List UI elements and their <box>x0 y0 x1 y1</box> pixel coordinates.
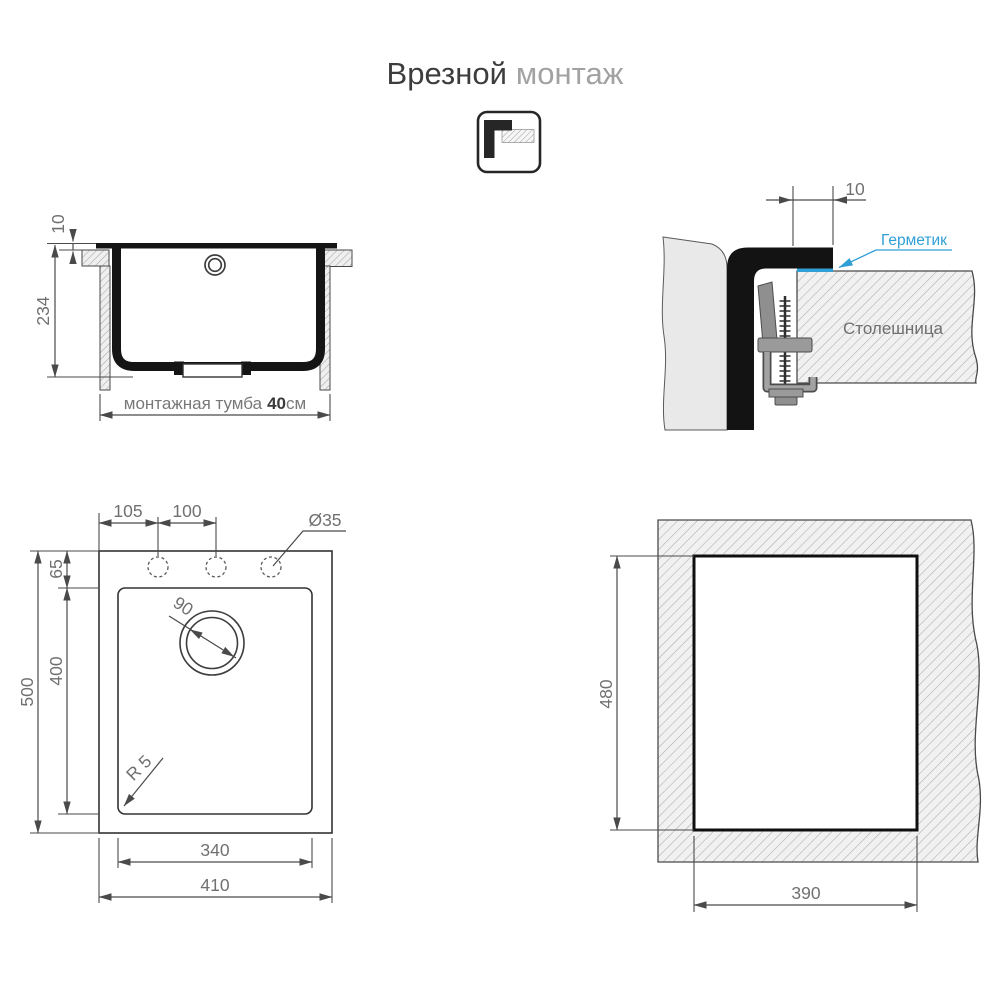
dim-bowl-length-label: 400 <box>46 656 66 685</box>
dim-depth-label: 234 <box>33 296 53 325</box>
cabinet-size-value: 40 <box>267 394 286 413</box>
dim-hole-spacing-label: 100 <box>172 501 201 521</box>
countertop-label: Столешница <box>843 319 944 338</box>
cabinet-label-text: монтажная тумба <box>124 394 263 413</box>
dim-total-length-label: 500 <box>17 677 37 706</box>
cutout-rect <box>694 556 917 830</box>
dim-cutout-width-label: 390 <box>791 883 820 903</box>
inset-mount-icon <box>478 112 540 172</box>
cross-section-view: 10 234 монтажная тумба40см <box>33 214 352 421</box>
bowl-outline-plan <box>118 588 312 814</box>
bottom-dims: 340 410 <box>99 838 332 903</box>
dim-total-width-label: 410 <box>200 875 229 895</box>
page-title-secondary: монтаж <box>516 56 624 91</box>
countertop-right-section <box>321 250 352 267</box>
dim-hole-offset-label: 105 <box>113 501 142 521</box>
installation-drawing: Врезноймонтаж <box>0 0 1000 1000</box>
clamp-plate <box>758 282 777 344</box>
cabinet-size-label: монтажная тумба40см <box>124 394 306 413</box>
clamp-bracket <box>758 338 812 352</box>
dim-overlap-label: 10 <box>845 179 865 199</box>
dim-bowl-width-label: 340 <box>200 840 229 860</box>
sink-rim-section <box>96 243 337 249</box>
sealant-label: Герметик <box>881 232 947 249</box>
icon-countertop-hatch <box>502 130 534 143</box>
cutout-view: 480 390 <box>596 520 980 912</box>
countertop-left-section <box>82 250 109 266</box>
page-title: Врезноймонтаж <box>387 56 624 91</box>
mount-detail-view: 10 Герметик Столешница <box>662 179 977 430</box>
top-dims: 105 100 <box>99 501 216 556</box>
sink-body-surface <box>662 237 727 430</box>
clamp-bolt-head <box>775 397 797 405</box>
dim-rim-above-label: 10 <box>48 214 68 234</box>
dim-cutout-height-label: 480 <box>596 679 616 708</box>
cabinet-unit-text: см <box>286 394 306 413</box>
cabinet-side-left <box>100 266 110 390</box>
left-dims: 65 400 500 <box>17 551 99 833</box>
icon-sink-rim <box>484 120 512 131</box>
sealant-callout: Герметик <box>839 232 952 268</box>
dim-edge-to-bowl-label: 65 <box>46 559 66 578</box>
clamp-washer <box>769 389 803 397</box>
installation-drawing-page: Врезноймонтаж <box>0 0 1000 1000</box>
page-title-primary: Врезной <box>387 56 507 91</box>
drain-flange <box>183 364 242 377</box>
dim-hole-diameter-label: Ø35 <box>308 510 341 530</box>
top-view: 90 R 5 Ø35 105 100 <box>17 501 346 903</box>
